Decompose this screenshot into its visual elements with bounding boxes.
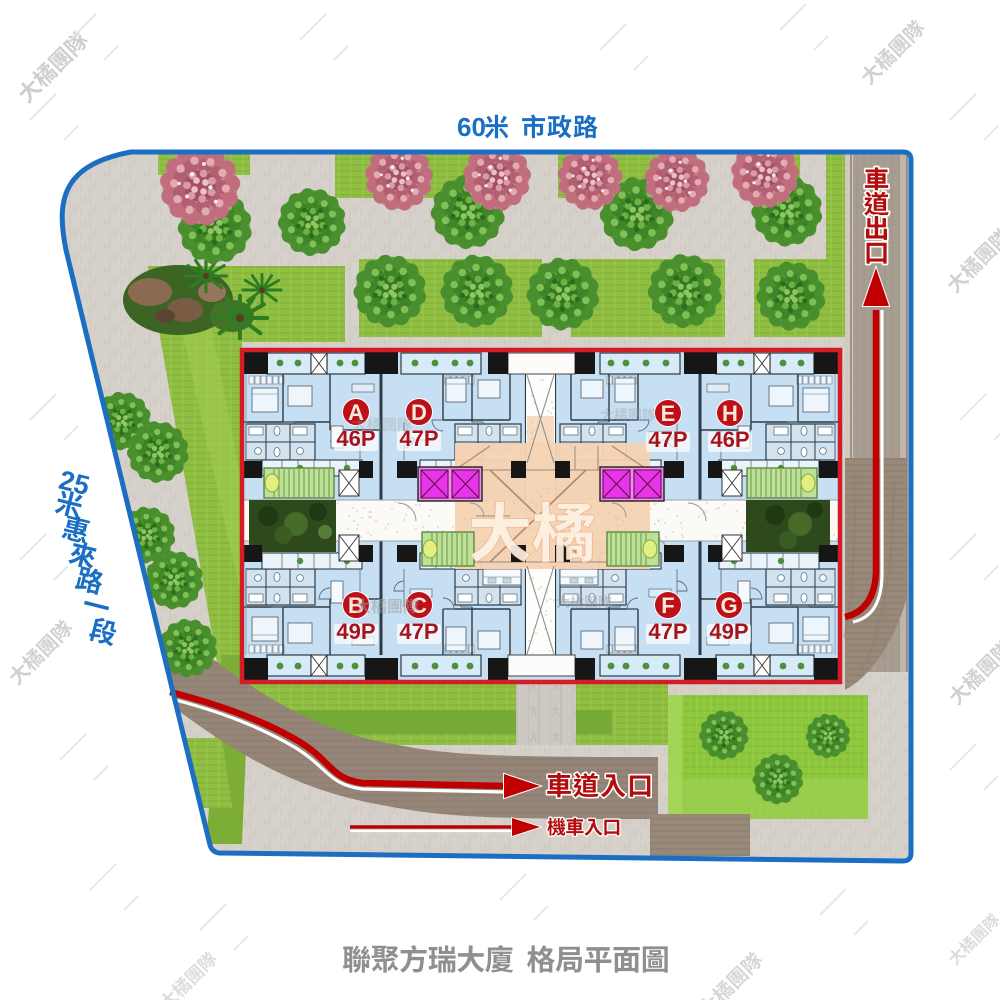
- svg-text:47P: 47P: [399, 619, 438, 644]
- svg-text:H: H: [722, 401, 738, 426]
- svg-text:D: D: [411, 400, 427, 425]
- svg-text:49P: 49P: [336, 619, 375, 644]
- svg-text:60: 60: [457, 112, 486, 142]
- svg-text:E: E: [661, 401, 676, 426]
- svg-text:G: G: [720, 593, 737, 618]
- svg-text:46P: 46P: [710, 427, 749, 452]
- svg-text:A: A: [348, 400, 364, 425]
- svg-text:47P: 47P: [648, 427, 687, 452]
- svg-text:47P: 47P: [648, 619, 687, 644]
- svg-text:F: F: [661, 593, 674, 618]
- svg-text:49P: 49P: [709, 619, 748, 644]
